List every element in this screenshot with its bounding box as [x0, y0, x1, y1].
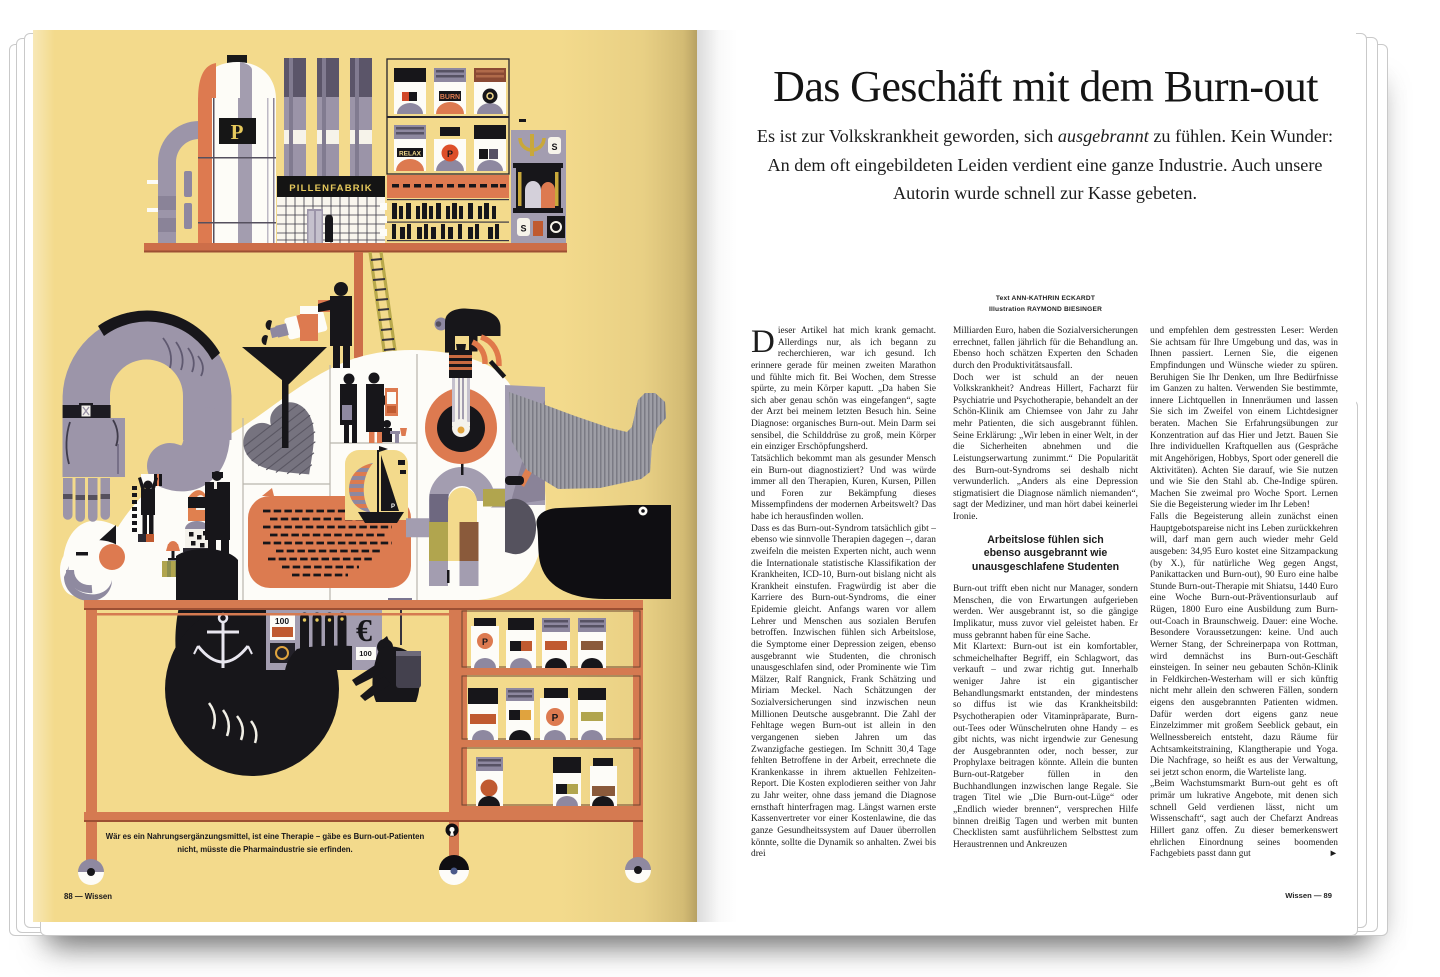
svg-text:S: S: [551, 142, 557, 152]
svg-text:P: P: [391, 504, 395, 510]
svg-text:P: P: [447, 149, 453, 159]
svg-text:nicht, müsste die Pharmaindust: nicht, müsste die Pharmaindustrie sie er…: [177, 845, 352, 854]
svg-text:Wär es ein Nahrungsergänzungsm: Wär es ein Nahrungsergänzungsmittel, ist…: [106, 832, 425, 841]
svg-text:P: P: [482, 637, 488, 647]
svg-text:€: €: [356, 612, 372, 648]
svg-text:PILLENFABRIK: PILLENFABRIK: [289, 183, 373, 194]
svg-text:100: 100: [359, 649, 372, 658]
svg-text:88 — Wissen: 88 — Wissen: [64, 892, 112, 901]
svg-text:P: P: [552, 713, 559, 724]
svg-text:S: S: [520, 224, 526, 234]
svg-text:P: P: [231, 120, 244, 144]
svg-text:BURN: BURN: [440, 94, 460, 101]
svg-text:100: 100: [275, 616, 289, 626]
svg-text:RELAX: RELAX: [399, 151, 422, 158]
